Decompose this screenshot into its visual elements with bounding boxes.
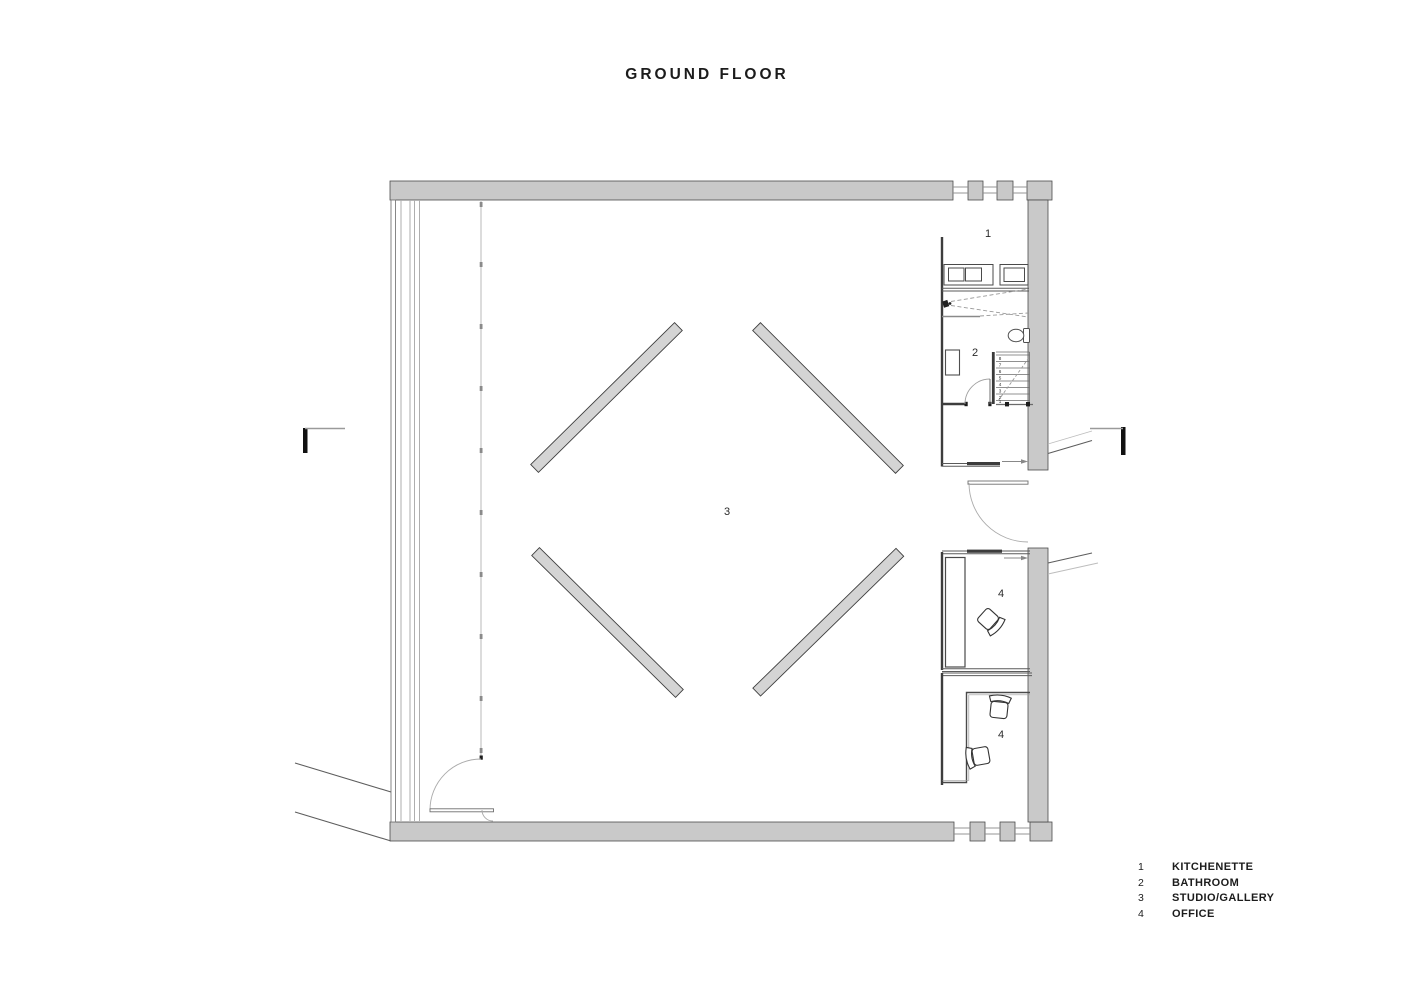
door-jamb (1005, 402, 1009, 406)
entrance-door-leaf (968, 481, 1028, 484)
legend-label: BATHROOM (1172, 877, 1239, 889)
right-wall-upper (1028, 200, 1048, 470)
top-wall (390, 181, 953, 200)
bottom-wall (390, 822, 954, 841)
legend-row-bathroom: 2 BATHROOM (1138, 875, 1274, 891)
floor-plan-drawing: 1 2 3 4 5 6 7 8 (0, 0, 1414, 1000)
legend-label: STUDIO/GALLERY (1172, 892, 1274, 904)
legend-number: 3 (1138, 892, 1172, 904)
bottom-wall-mullion (1000, 822, 1015, 841)
svg-text:7: 7 (999, 363, 1002, 368)
office-chair (987, 694, 1011, 719)
office-chair (964, 744, 990, 770)
top-wall-corner (1027, 181, 1052, 200)
kitchen-counter (944, 265, 1028, 286)
shower-spray-lines (951, 289, 1028, 317)
legend-row-office: 4 OFFICE (1138, 906, 1274, 922)
staircase: 1 2 3 4 5 6 7 8 (993, 352, 1033, 406)
top-wall-mullion (997, 181, 1013, 200)
left-wall-lining-lines (401, 200, 420, 821)
diagonal-partition-nw (531, 323, 683, 473)
legend-number: 2 (1138, 877, 1172, 889)
sink-bowl (966, 268, 982, 281)
floor-plan-page: GROUND FLOOR (0, 0, 1414, 1000)
section-marker-left (303, 428, 308, 453)
legend-row-kitchenette: 1 KITCHENETTE (1138, 859, 1274, 875)
appliance (1004, 268, 1025, 282)
office-upper-room (942, 550, 1030, 672)
curtain-track (480, 200, 483, 759)
legend-label: OFFICE (1172, 908, 1215, 920)
stair-up-line (998, 359, 1028, 401)
office-lower-room (942, 673, 1032, 785)
svg-text:4: 4 (999, 382, 1002, 387)
room-label-kitchenette: 1 (985, 228, 991, 240)
studio-diagonal-partitions (531, 323, 904, 698)
room-label-office-upper: 4 (998, 588, 1004, 600)
sink-bowl (949, 268, 965, 281)
svg-text:3: 3 (999, 389, 1002, 394)
sliding-door-arrow (1004, 556, 1028, 561)
section-marker-right (1121, 427, 1126, 455)
bottom-wall-corner (1030, 822, 1052, 841)
left-wall (391, 200, 396, 822)
right-wall-lower (1028, 548, 1048, 822)
diagonal-partition-sw (532, 548, 684, 698)
section-markers (303, 427, 1126, 455)
legend-label: KITCHENETTE (1172, 861, 1253, 873)
svg-text:5: 5 (999, 376, 1002, 381)
toilet-icon (1008, 329, 1029, 343)
diagonal-partition-se (753, 548, 904, 696)
svg-text:8: 8 (999, 356, 1002, 361)
room-label-bathroom: 2 (972, 347, 978, 359)
bathroom-room: 1 2 3 4 5 6 7 8 (942, 288, 1033, 466)
door-leaf (430, 809, 494, 812)
sliding-door-arrow (1002, 459, 1028, 464)
legend-row-studio-gallery: 3 STUDIO/GALLERY (1138, 890, 1274, 906)
entrance-door-arc (969, 483, 1028, 542)
svg-text:6: 6 (999, 369, 1002, 374)
studio-entry-door (430, 756, 494, 822)
top-wall-mullion (968, 181, 983, 200)
door-jamb (1026, 402, 1030, 406)
basin-cabinet (946, 350, 960, 375)
shower-head-icon (942, 300, 951, 308)
diagonal-partition-ne (753, 323, 904, 474)
stair-tread-numbers: 1 2 3 4 5 6 7 8 (999, 356, 1002, 404)
desk (946, 558, 966, 668)
desk-l-shaped (943, 693, 1031, 783)
office-chair (975, 605, 1007, 637)
room-label-office-lower: 4 (998, 729, 1004, 741)
bathroom-door-arc (965, 379, 990, 404)
svg-text:2: 2 (999, 395, 1002, 400)
bottom-wall-mullion (970, 822, 985, 841)
legend-number: 4 (1138, 908, 1172, 920)
entrance-door (968, 481, 1028, 542)
site-lines (295, 431, 1098, 841)
legend: 1 KITCHENETTE 2 BATHROOM 3 STUDIO/GALLER… (1138, 859, 1274, 922)
door-arc-large (430, 759, 481, 810)
sliding-door-leaf (967, 550, 1002, 553)
sliding-door-leaf (967, 462, 1000, 465)
room-label-studio: 3 (724, 506, 730, 518)
legend-number: 1 (1138, 861, 1172, 873)
